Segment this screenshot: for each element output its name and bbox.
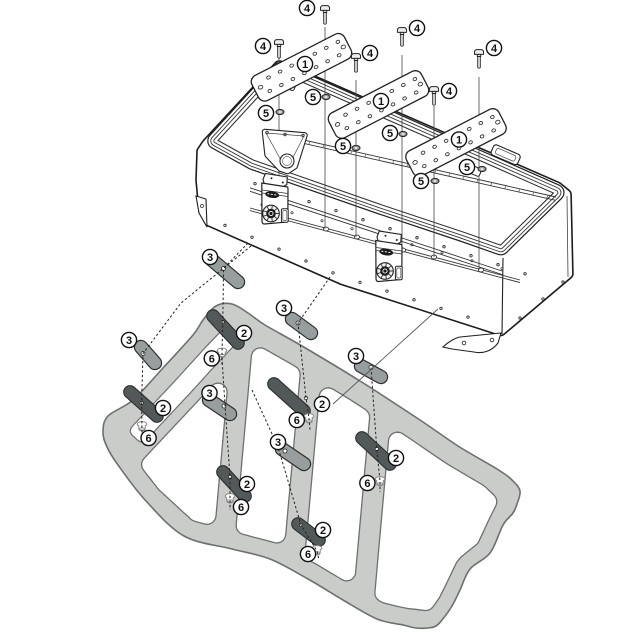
svg-text:1: 1: [456, 135, 462, 147]
svg-text:5: 5: [418, 176, 424, 188]
svg-text:5: 5: [387, 128, 393, 140]
svg-text:6: 6: [305, 549, 311, 561]
svg-text:4: 4: [260, 41, 267, 53]
svg-text:3: 3: [353, 351, 359, 363]
svg-text:6: 6: [146, 433, 152, 445]
svg-text:2: 2: [241, 328, 247, 340]
svg-text:3: 3: [281, 303, 287, 315]
svg-text:3: 3: [206, 388, 212, 400]
svg-text:4: 4: [304, 3, 311, 15]
svg-text:5: 5: [263, 108, 269, 120]
svg-text:2: 2: [319, 399, 325, 411]
svg-text:6: 6: [364, 478, 370, 490]
svg-text:4: 4: [446, 86, 453, 98]
svg-text:1: 1: [302, 59, 308, 71]
svg-text:2: 2: [160, 403, 166, 415]
svg-text:5: 5: [464, 162, 470, 174]
svg-text:2: 2: [393, 453, 399, 465]
svg-text:4: 4: [491, 43, 498, 55]
svg-text:2: 2: [244, 479, 250, 491]
svg-text:4: 4: [367, 48, 374, 60]
svg-text:5: 5: [340, 141, 346, 153]
svg-text:1: 1: [378, 96, 384, 108]
svg-text:6: 6: [209, 354, 215, 366]
svg-text:6: 6: [294, 415, 300, 427]
svg-text:5: 5: [310, 92, 316, 104]
svg-text:2: 2: [320, 525, 326, 537]
svg-text:3: 3: [207, 252, 213, 264]
svg-text:3: 3: [126, 335, 132, 347]
svg-text:6: 6: [238, 502, 244, 514]
svg-text:3: 3: [275, 437, 281, 449]
svg-text:4: 4: [414, 23, 421, 35]
